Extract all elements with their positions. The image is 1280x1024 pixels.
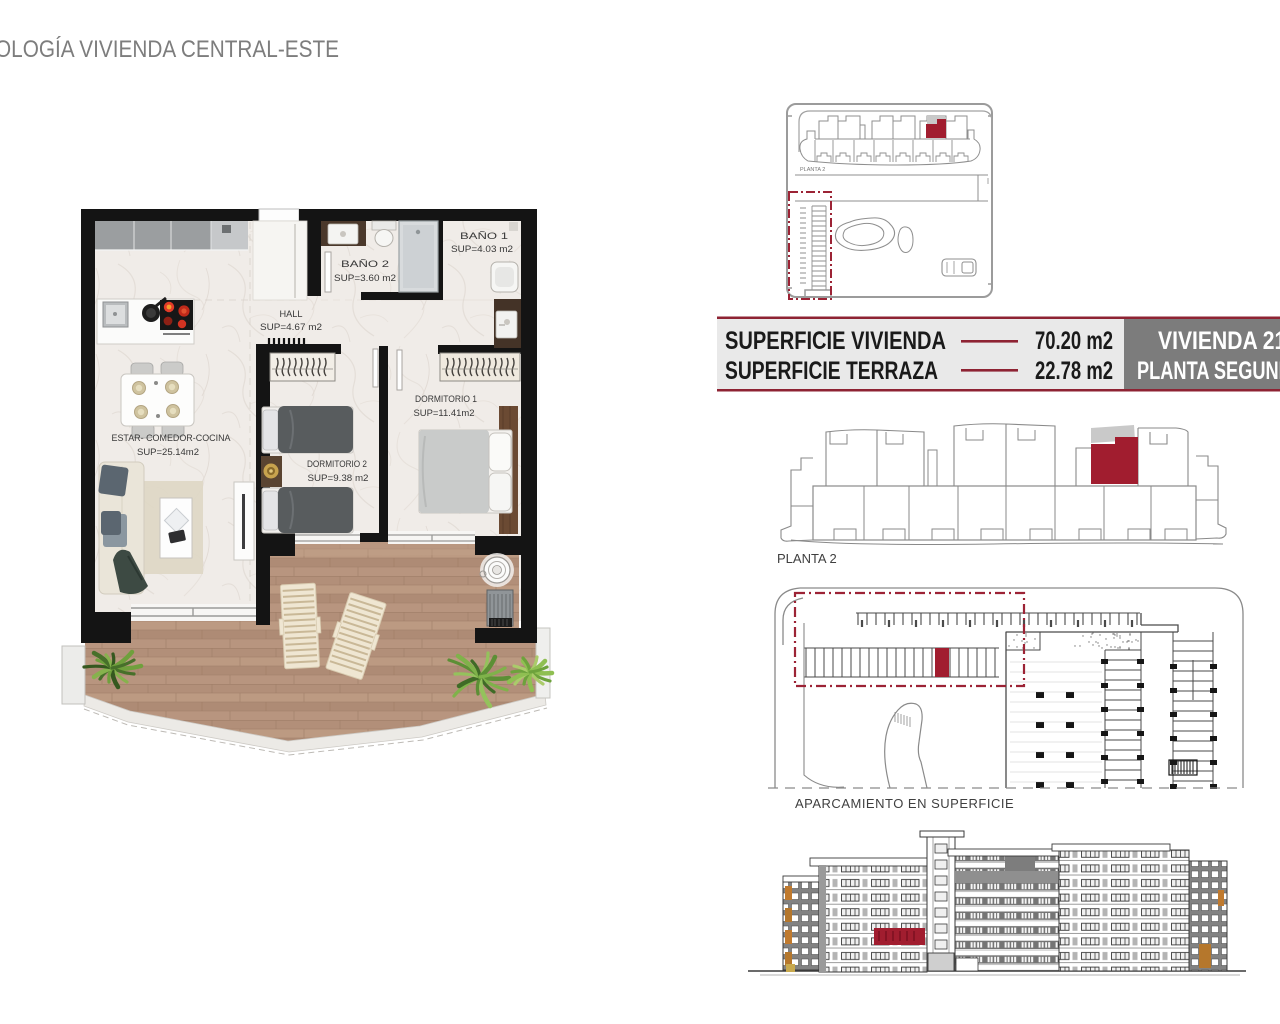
svg-text:SUP=4.03 m2: SUP=4.03 m2 (451, 244, 513, 255)
svg-text:VIVIENDA 212: VIVIENDA 212 (1158, 327, 1280, 355)
svg-text:PLANTA SEGUNDA: PLANTA SEGUNDA (1137, 357, 1280, 385)
svg-text:SUPERFICIE TERRAZA: SUPERFICIE TERRAZA (725, 357, 938, 385)
svg-text:ESTAR- COMEDOR-COCINA: ESTAR- COMEDOR-COCINA (112, 433, 232, 444)
svg-text:BAÑO 1: BAÑO 1 (460, 231, 508, 242)
svg-text:SUP=3.60 m2: SUP=3.60 m2 (334, 273, 396, 284)
svg-text:SUP=9.38 m2: SUP=9.38 m2 (308, 473, 369, 484)
svg-text:SUP=4.67 m2: SUP=4.67 m2 (260, 322, 322, 333)
svg-text:APARCAMIENTO EN SUPERFICIE: APARCAMIENTO EN SUPERFICIE (795, 796, 1014, 811)
svg-text:PLANTA 2: PLANTA 2 (777, 551, 837, 566)
svg-text:DORMITORIO 2: DORMITORIO 2 (307, 459, 367, 470)
svg-text:BAÑO 2: BAÑO 2 (341, 259, 389, 270)
svg-text:SUP=11.41m2: SUP=11.41m2 (414, 408, 475, 419)
svg-text:DORMITORIO 1: DORMITORIO 1 (415, 394, 477, 405)
svg-text:70.20 m2: 70.20 m2 (1035, 327, 1113, 355)
svg-text:HALL: HALL (280, 309, 303, 320)
svg-text:22.78 m2: 22.78 m2 (1035, 357, 1113, 385)
svg-text:SUP=25.14m2: SUP=25.14m2 (137, 447, 199, 458)
svg-text:SUPERFICIE VIVIENDA: SUPERFICIE VIVIENDA (725, 327, 946, 355)
svg-text:OLOGÍA VIVIENDA CENTRAL-ESTE: OLOGÍA VIVIENDA CENTRAL-ESTE (0, 36, 339, 63)
svg-text:PLANTA 2: PLANTA 2 (800, 167, 825, 173)
